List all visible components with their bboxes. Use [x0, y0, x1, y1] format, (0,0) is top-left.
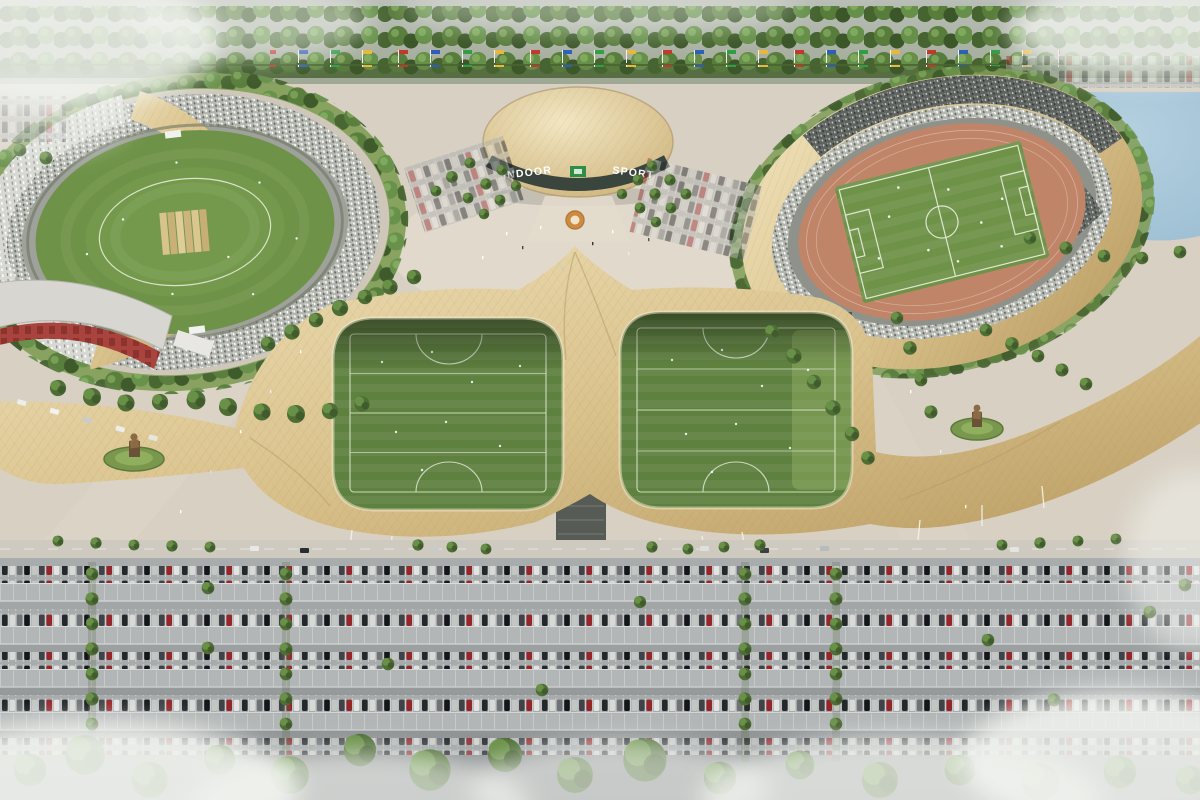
flag-row — [270, 50, 1060, 67]
hockey-field-east — [613, 304, 859, 516]
canopy-shadow-east — [620, 312, 852, 364]
scene-canvas: INDOOR SPORT — [0, 0, 1200, 800]
plaza-fountain — [566, 211, 584, 229]
hockey-field-west — [326, 310, 570, 518]
sports-complex-rendering: INDOOR SPORT — [0, 0, 1200, 800]
canopy-shadow-west — [333, 318, 563, 372]
access-road — [0, 540, 1200, 558]
